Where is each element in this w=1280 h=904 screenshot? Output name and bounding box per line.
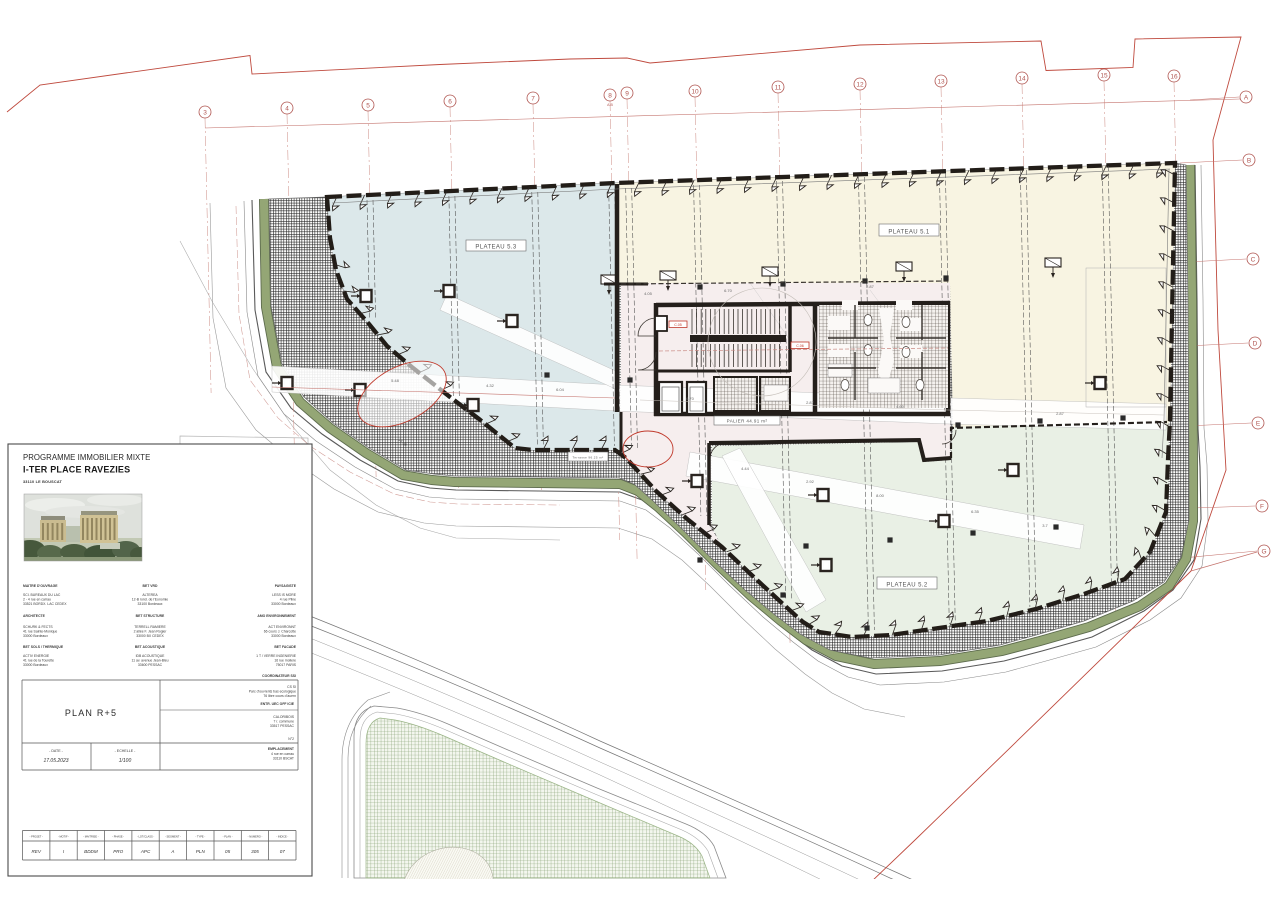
svg-text:3: 3 xyxy=(203,109,207,116)
svg-text:8.00: 8.00 xyxy=(876,493,885,498)
svg-text:76 libre cours d’auern: 76 libre cours d’auern xyxy=(263,694,296,698)
svg-text:BET STRUCTURE: BET STRUCTURE xyxy=(136,614,165,618)
svg-text:33000 BX CEDEX: 33000 BX CEDEX xyxy=(136,634,164,638)
svg-text:4.60: 4.60 xyxy=(896,404,905,409)
svg-text:33521 BORDX. LAC CEDEX: 33521 BORDX. LAC CEDEX xyxy=(23,602,67,606)
svg-text:14: 14 xyxy=(1018,75,1026,82)
svg-text:- PLAN -: - PLAN - xyxy=(223,835,233,839)
svg-text:66 cours J. Charcotte: 66 cours J. Charcotte xyxy=(264,630,296,634)
svg-text:ENTR. UEC OFF ICIE: ENTR. UEC OFF ICIE xyxy=(260,702,294,706)
svg-text:LESS IS MORE: LESS IS MORE xyxy=(272,593,297,597)
svg-text:PLATEAU 5.3: PLATEAU 5.3 xyxy=(475,244,517,250)
svg-text:SCHURK & FECTS: SCHURK & FECTS xyxy=(23,625,53,629)
svg-text:- INDICE -: - INDICE - xyxy=(276,835,288,839)
svg-text:4: 4 xyxy=(285,105,289,112)
svg-text:Terrasse 96.25 m²: Terrasse 96.25 m² xyxy=(573,455,604,459)
svg-text:ALTEREA: ALTEREA xyxy=(142,593,158,597)
svg-text:ACTIV ENERGIE: ACTIV ENERGIE xyxy=(23,654,50,658)
svg-text:8: 8 xyxy=(608,92,612,99)
svg-text:4.32: 4.32 xyxy=(486,383,495,388)
svg-text:07: 07 xyxy=(280,849,286,854)
svg-text:A.B: A.B xyxy=(607,103,613,107)
svg-text:N°2: N°2 xyxy=(288,737,294,741)
svg-text:11: 11 xyxy=(775,84,782,91)
svg-text:- ECHELLE -: - ECHELLE - xyxy=(115,749,137,753)
svg-text:- MAITRISE -: - MAITRISE - xyxy=(83,835,99,839)
svg-text:- SEGMENT -: - SEGMENT - xyxy=(165,835,181,839)
svg-text:6.70: 6.70 xyxy=(724,288,733,293)
svg-text:5: 5 xyxy=(366,102,370,109)
svg-text:6: 6 xyxy=(448,98,452,105)
svg-text:6.04: 6.04 xyxy=(556,387,565,392)
svg-text:2.87: 2.87 xyxy=(806,400,815,405)
svg-text:A: A xyxy=(170,849,174,854)
svg-text:BET ACOUSTIQUE: BET ACOUSTIQUE xyxy=(135,645,166,649)
svg-text:APC: APC xyxy=(140,849,151,854)
svg-text:7 r. commune: 7 r. commune xyxy=(273,720,294,724)
svg-text:REV: REV xyxy=(31,849,41,854)
svg-text:BDDM: BDDM xyxy=(84,849,98,854)
svg-text:G: G xyxy=(1261,548,1266,555)
svg-text:PRO: PRO xyxy=(113,849,123,854)
svg-text:13: 13 xyxy=(937,78,945,85)
svg-text:11 av. avenue Jean-Bleu: 11 av. avenue Jean-Bleu xyxy=(131,659,168,663)
svg-text:2.87: 2.87 xyxy=(1056,411,1065,416)
svg-text:D: D xyxy=(1253,340,1258,347)
svg-text:7: 7 xyxy=(531,95,535,102)
svg-text:75017 PARIS: 75017 PARIS xyxy=(276,663,297,667)
svg-text:I-TER PLACE RAVEZIES: I-TER PLACE RAVEZIES xyxy=(23,465,130,475)
svg-text:PALIER 44.91 m²: PALIER 44.91 m² xyxy=(727,418,768,423)
svg-text:05: 05 xyxy=(225,849,231,854)
svg-text:9: 9 xyxy=(625,90,629,97)
svg-text:ARCHITECTE: ARCHITECTE xyxy=(23,614,46,618)
svg-text:C.06: C.06 xyxy=(796,344,804,348)
svg-text:15: 15 xyxy=(1100,72,1108,79)
svg-text:3.7: 3.7 xyxy=(1042,523,1048,528)
svg-text:C.05: C.05 xyxy=(674,323,682,327)
svg-text:4 rue en carrau: 4 rue en carrau xyxy=(271,752,294,756)
svg-text:PLATEAU 5.2: PLATEAU 5.2 xyxy=(886,582,928,588)
svg-text:10: 10 xyxy=(691,88,699,95)
svg-text:2 - 4 rue en carrau: 2 - 4 rue en carrau xyxy=(23,598,51,602)
svg-text:PLAN R+5: PLAN R+5 xyxy=(65,708,117,718)
svg-text:AMO ENVIRONNEMENT: AMO ENVIRONNEMENT xyxy=(257,614,297,618)
svg-text:COORDINATEUR SSI: COORDINATEUR SSI xyxy=(262,674,296,678)
svg-text:- TYPE -: - TYPE - xyxy=(195,835,205,839)
svg-text:2.87: 2.87 xyxy=(866,284,875,289)
svg-text:4 rue Pline: 4 rue Pline xyxy=(280,598,296,602)
svg-text:33000 Bordeaux: 33000 Bordeaux xyxy=(271,634,296,638)
svg-text:SCI. BUREAUX DU LAC: SCI. BUREAUX DU LAC xyxy=(23,593,61,597)
svg-text:- LOT/CLASS -: - LOT/CLASS - xyxy=(137,835,155,839)
svg-text:IDB ACOUSTIQUE: IDB ACOUSTIQUE xyxy=(136,654,166,658)
svg-text:B: B xyxy=(1247,157,1251,164)
svg-text:12: 12 xyxy=(856,81,864,88)
svg-text:6.35: 6.35 xyxy=(971,509,980,514)
svg-text:6.70: 6.70 xyxy=(686,396,695,401)
svg-text:BET SOLS / THERMIQUE: BET SOLS / THERMIQUE xyxy=(23,645,64,649)
svg-text:A: A xyxy=(1244,94,1249,101)
svg-text:F: F xyxy=(1260,503,1264,510)
svg-text:- PHASE -: - PHASE - xyxy=(112,835,124,839)
svg-text:17.05.2023: 17.05.2023 xyxy=(43,758,68,764)
svg-text:ACT ENVIRONNT: ACT ENVIRONNT xyxy=(268,625,296,629)
svg-text:TERRELL RAMIERE: TERRELL RAMIERE xyxy=(134,625,166,629)
svg-text:C: C xyxy=(1251,256,1256,263)
svg-text:CALORIBOIS: CALORIBOIS xyxy=(273,715,294,719)
svg-text:16: 16 xyxy=(1170,73,1178,80)
svg-text:PLATEAU 5.1: PLATEAU 5.1 xyxy=(888,229,930,235)
svg-text:41 rue Sainte-Monique: 41 rue Sainte-Monique xyxy=(23,630,57,634)
svg-text:1/100: 1/100 xyxy=(119,758,132,764)
svg-text:PAYSAGISTE: PAYSAGISTE xyxy=(275,584,297,588)
svg-text:33000 Bordeaux: 33000 Bordeaux xyxy=(23,663,48,667)
svg-text:33110 LE BOUSCAT: 33110 LE BOUSCAT xyxy=(23,480,62,484)
svg-text:33100 Bordeaux: 33100 Bordeaux xyxy=(138,602,163,606)
svg-text:E: E xyxy=(1256,420,1261,427)
svg-text:EMPLACEMENT: EMPLACEMENT xyxy=(268,747,295,751)
svg-text:BET VRD: BET VRD xyxy=(143,584,158,588)
svg-text:- DATE -: - DATE - xyxy=(49,749,64,753)
svg-text:33000 Bordeaux: 33000 Bordeaux xyxy=(271,602,296,606)
svg-text:PROGRAMME IMMOBILIER MIXTE: PROGRAMME IMMOBILIER MIXTE xyxy=(23,453,150,462)
svg-text:MAITRE D’OUVRAGE: MAITRE D’OUVRAGE xyxy=(23,584,58,588)
svg-text:33110 BSCAT: 33110 BSCAT xyxy=(273,757,294,761)
svg-text:- NUMERO -: - NUMERO - xyxy=(248,835,263,839)
svg-text:33517 PESSAC: 33517 PESSAC xyxy=(270,724,295,728)
svg-text:4.44: 4.44 xyxy=(741,466,750,471)
svg-text:- PROJET -: - PROJET - xyxy=(30,835,43,839)
svg-text:CS SI: CS SI xyxy=(287,685,296,689)
svg-text:BET FACADE: BET FACADE xyxy=(274,645,296,649)
svg-text:305: 305 xyxy=(251,849,259,854)
svg-text:16 rue moliere: 16 rue moliere xyxy=(274,659,296,663)
svg-text:33600 PESSAC: 33600 PESSAC xyxy=(138,663,163,667)
svg-text:PLN: PLN xyxy=(196,849,206,854)
svg-text:- MOTIF -: - MOTIF - xyxy=(58,835,69,839)
svg-text:5.48: 5.48 xyxy=(391,378,400,383)
svg-text:2.92: 2.92 xyxy=(806,479,815,484)
svg-text:2 allée F. Jean Rogier: 2 allée F. Jean Rogier xyxy=(134,630,168,634)
svg-text:1 T / VERRE INGENIERIE: 1 T / VERRE INGENIERIE xyxy=(256,654,297,658)
svg-text:33000 Bordeaux: 33000 Bordeaux xyxy=(23,634,48,638)
svg-text:41 rue de la Tourette: 41 rue de la Tourette xyxy=(23,659,54,663)
svg-text:4.05: 4.05 xyxy=(644,291,653,296)
svg-text:Parc d’ouvrents bas ecologique: Parc d’ouvrents bas ecologique xyxy=(249,690,296,694)
svg-text:12-B rond. de l’Eonomie: 12-B rond. de l’Eonomie xyxy=(132,598,168,602)
